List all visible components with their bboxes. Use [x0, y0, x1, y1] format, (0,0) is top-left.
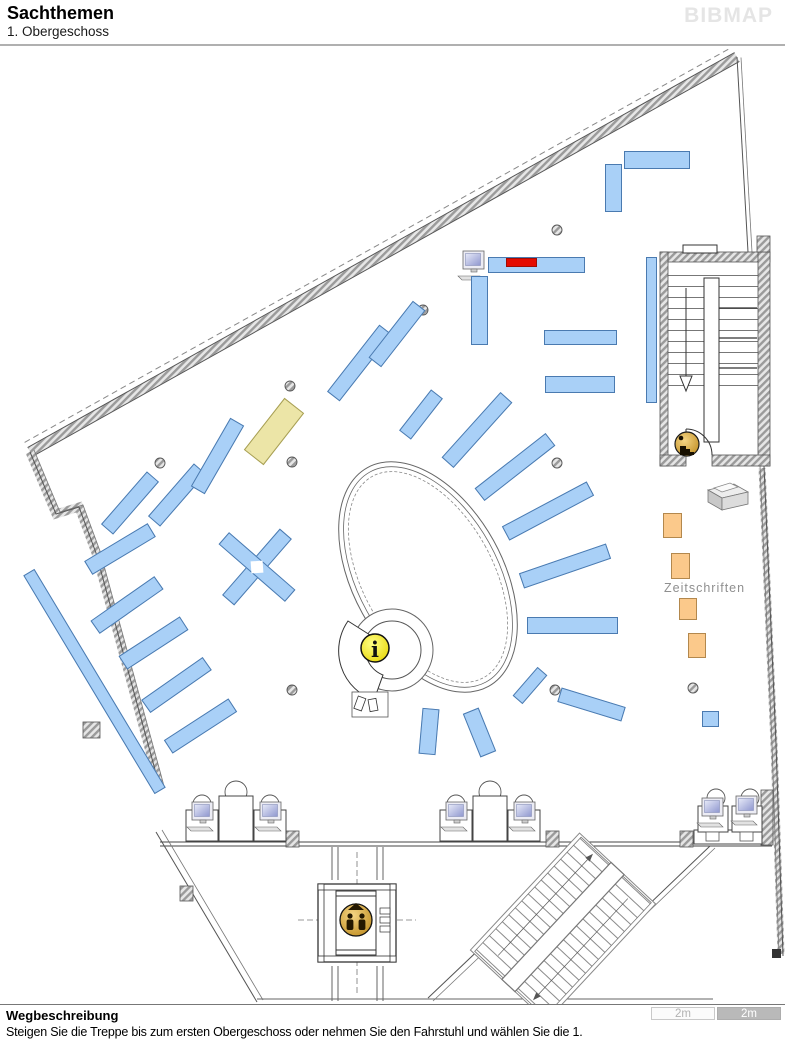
shelf: [646, 257, 657, 403]
header: Sachthemen 1. Obergeschoss BIBMAP: [0, 0, 785, 46]
shelf-magazines: [688, 633, 706, 658]
shelf: [544, 330, 617, 345]
scale-segment: 2m: [717, 1007, 781, 1020]
info-icon: i: [361, 634, 389, 662]
floor-subtitle: 1. Obergeschoss: [7, 24, 109, 39]
staircase-lower: [470, 833, 655, 1021]
floor-plan-map: i: [0, 0, 785, 1043]
info-desk: [339, 609, 433, 717]
directions-text: Steigen Sie die Treppe bis zum ersten Ob…: [6, 1025, 583, 1039]
bibmap-logo: BIBMAP: [684, 4, 773, 28]
shelf: [527, 617, 618, 634]
shelf-highlight: [506, 258, 537, 267]
zeitschriften-label: Zeitschriften: [664, 581, 745, 595]
bibmap-page: i: [0, 0, 785, 1043]
workstation-group-right: [694, 789, 762, 844]
staircase-upper-right: [660, 236, 770, 466]
shelf-magazines: [671, 553, 690, 579]
workstation-group-middle: [440, 781, 540, 841]
scale-segment: 2m: [651, 1007, 715, 1020]
page-title: Sachthemen: [7, 3, 114, 24]
footer: Wegbeschreibung Steigen Sie die Treppe b…: [0, 1004, 785, 1043]
shelf-cross-gap: [251, 561, 264, 574]
workstation-group-left: [186, 781, 286, 841]
shelf: [471, 276, 488, 345]
svg-text:i: i: [371, 637, 379, 662]
shelf-magazines: [663, 513, 682, 538]
shelf-magazines: [679, 598, 697, 620]
shelf: [605, 164, 622, 212]
directions-heading: Wegbeschreibung: [6, 1008, 118, 1023]
shelf: [702, 711, 719, 727]
printer-icon: [708, 483, 748, 510]
elevator-icon: [340, 903, 372, 936]
shelf: [624, 151, 690, 169]
scale-bar: 2m 2m: [651, 1007, 783, 1021]
stairs-icon: [675, 432, 699, 456]
shelf: [545, 376, 615, 393]
